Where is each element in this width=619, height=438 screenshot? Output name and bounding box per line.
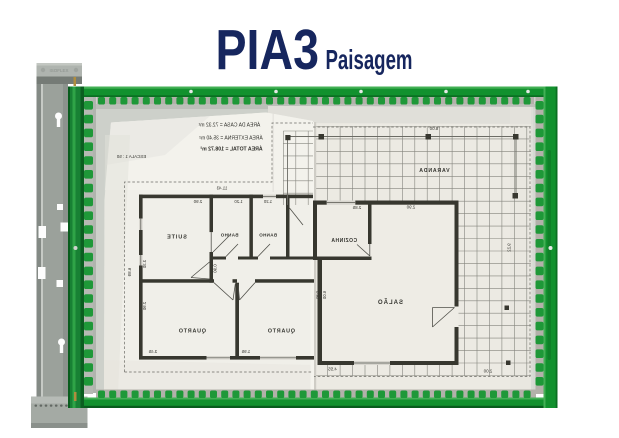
svg-text:9.22: 9.22 — [507, 243, 512, 252]
svg-text:ÁREA EXTERNA = 35.40 m²: ÁREA EXTERNA = 35.40 m² — [199, 135, 263, 142]
svg-text:Paisagem: Paisagem — [326, 44, 413, 75]
svg-text:6.00: 6.00 — [322, 291, 327, 300]
svg-text:VARANDA: VARANDA — [418, 168, 449, 174]
svg-text:1.20: 1.20 — [263, 199, 272, 204]
svg-text:SALÃO: SALÃO — [377, 299, 403, 306]
svg-text:2.00: 2.00 — [483, 369, 492, 374]
svg-text:COZINHA: COZINHA — [331, 238, 357, 244]
svg-text:QUARTO: QUARTO — [178, 329, 206, 335]
svg-text:3.45: 3.45 — [148, 349, 157, 354]
svg-text:ESCALA 1 : 50: ESCALA 1 : 50 — [116, 154, 146, 159]
svg-text:2.90: 2.90 — [193, 199, 202, 204]
svg-text:0.90: 0.90 — [213, 264, 218, 273]
svg-text:1.95: 1.95 — [241, 349, 250, 354]
svg-text:11.43: 11.43 — [216, 186, 227, 191]
svg-text:6.89: 6.89 — [127, 268, 132, 277]
svg-text:QUARTO: QUARTO — [267, 329, 295, 335]
svg-text:PIA3: PIA3 — [216, 18, 320, 82]
svg-text:0.90: 0.90 — [315, 291, 320, 300]
svg-text:1.20: 1.20 — [234, 199, 243, 204]
svg-text:8.00: 8.00 — [429, 126, 438, 131]
svg-text:2.90: 2.90 — [406, 205, 415, 210]
svg-text:3.30: 3.30 — [142, 260, 147, 269]
svg-text:BANHO: BANHO — [259, 233, 277, 238]
svg-text:BANHO: BANHO — [220, 233, 238, 238]
svg-text:ÁREA DA CASA = 72.32 m²: ÁREA DA CASA = 72.32 m² — [198, 122, 260, 129]
svg-text:2.90: 2.90 — [142, 302, 147, 311]
svg-text:ÁREA TOTAL = 108.72 m²: ÁREA TOTAL = 108.72 m² — [200, 146, 262, 153]
svg-text:4.55: 4.55 — [328, 367, 337, 372]
svg-text:ISOFLEX: ISOFLEX — [49, 68, 68, 73]
svg-text:SUITE: SUITE — [166, 235, 187, 241]
svg-text:2.85: 2.85 — [352, 205, 361, 210]
